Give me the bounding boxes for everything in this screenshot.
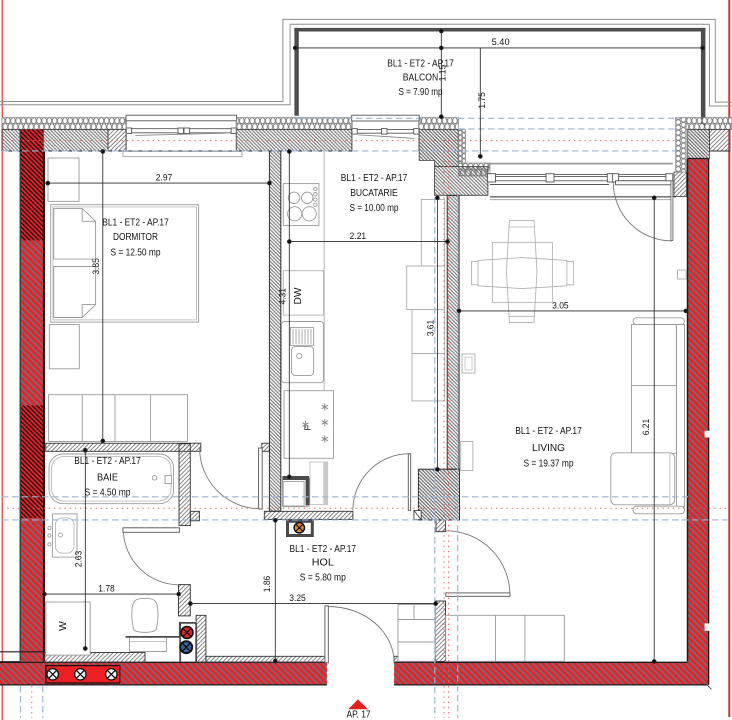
svg-text:BL1 - ET2 - AP.17: BL1 - ET2 - AP.17 — [515, 426, 582, 437]
svg-text:3.85: 3.85 — [91, 258, 101, 275]
svg-text:DORMITOR: DORMITOR — [113, 232, 158, 243]
svg-text:DW: DW — [293, 287, 304, 304]
svg-text:BL1 - ET2 - AP.17: BL1 - ET2 - AP.17 — [102, 218, 169, 229]
svg-text:5.40: 5.40 — [492, 37, 510, 47]
svg-text:BAIE: BAIE — [97, 472, 118, 483]
svg-text:S = 19.37 mp: S = 19.37 mp — [524, 458, 574, 469]
svg-text:BL1 - ET2 - AP.17: BL1 - ET2 - AP.17 — [290, 544, 357, 555]
svg-text:BL1 - ET2 - AP.17: BL1 - ET2 - AP.17 — [74, 456, 141, 467]
svg-text:BALCON: BALCON — [403, 73, 439, 84]
svg-text:1.86: 1.86 — [262, 576, 272, 593]
svg-text:S = 10.00 mp: S = 10.00 mp — [350, 203, 399, 214]
svg-text:2.63: 2.63 — [73, 551, 83, 568]
svg-text:3.25: 3.25 — [289, 593, 306, 603]
svg-text:F: F — [303, 425, 313, 430]
svg-text:AP. 17: AP. 17 — [347, 710, 371, 720]
svg-text:1.75: 1.75 — [477, 92, 487, 109]
svg-text:3.05: 3.05 — [552, 300, 569, 310]
svg-text:S = 7.90 mp: S = 7.90 mp — [399, 87, 443, 98]
svg-text:LIVING: LIVING — [532, 443, 565, 454]
svg-text:2.21: 2.21 — [350, 231, 367, 241]
svg-text:BL1 - ET2 - AP.17: BL1 - ET2 - AP.17 — [387, 58, 454, 69]
svg-text:HOL: HOL — [312, 557, 334, 568]
svg-text:S = 4.50 mp: S = 4.50 mp — [85, 487, 131, 498]
svg-text:S = 12.50 mp: S = 12.50 mp — [111, 247, 161, 258]
svg-text:BUCATARIE: BUCATARIE — [350, 188, 398, 199]
svg-text:3.61: 3.61 — [426, 320, 436, 337]
svg-text:W: W — [58, 621, 69, 631]
svg-text:BL1 - ET2 - AP.17: BL1 - ET2 - AP.17 — [341, 173, 408, 184]
svg-text:6.21: 6.21 — [641, 419, 651, 436]
svg-text:4.31: 4.31 — [278, 288, 288, 305]
svg-text:S = 5.80 mp: S = 5.80 mp — [300, 573, 346, 584]
svg-text:1.78: 1.78 — [98, 583, 115, 593]
svg-text:2.97: 2.97 — [156, 172, 173, 182]
